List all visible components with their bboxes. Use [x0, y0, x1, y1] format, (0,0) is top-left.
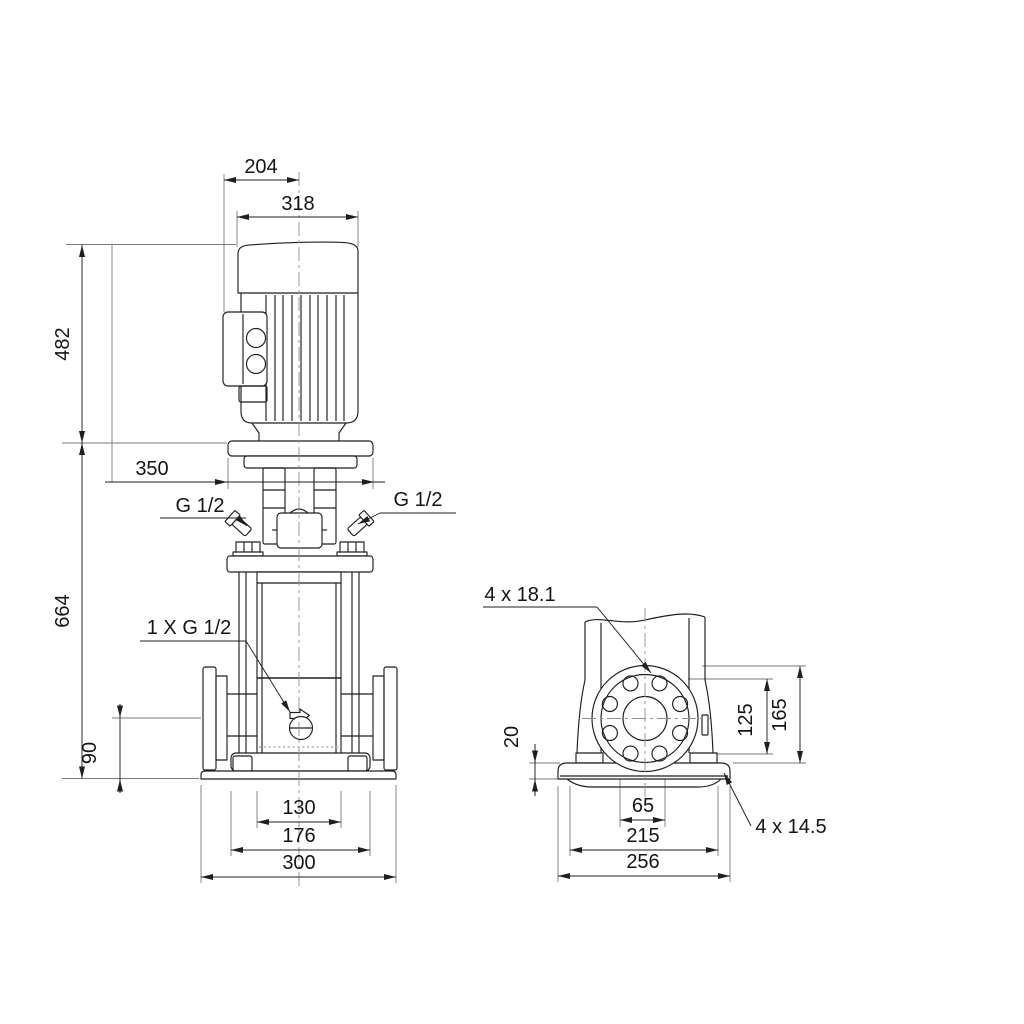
head-nut-left: [233, 542, 263, 556]
dim-300-label: 300: [282, 852, 315, 874]
suction-flange-face: [216, 676, 227, 760]
dim-204-label: 204: [244, 156, 277, 178]
dim-664-label: 664: [52, 594, 74, 627]
dim-176-label: 176: [282, 825, 315, 847]
dim-90-label: 90: [79, 742, 101, 764]
terminal-box: [223, 312, 267, 386]
dim-318-label: 318: [281, 193, 314, 215]
dim-20-label: 20: [501, 726, 523, 748]
dim-215-label: 215: [626, 825, 659, 847]
side-foot-left: [576, 753, 603, 763]
plug-right-label: G 1/2: [394, 489, 443, 511]
priming-plug-left: [225, 510, 254, 538]
rod-nut-left: [233, 756, 252, 771]
side-body-flare-right: [705, 680, 713, 753]
side-plug-tab: [702, 715, 708, 735]
plug-left-label: G 1/2: [176, 495, 225, 517]
dim-256-label: 256: [626, 851, 659, 873]
front-view: [201, 172, 397, 888]
motor-stool-plate: [228, 441, 373, 456]
flange-holes-label: 4 x 18.1: [484, 584, 555, 606]
priming-plug-right: [345, 510, 374, 538]
terminal-box-step: [239, 386, 267, 402]
rod-nut-right: [348, 756, 367, 771]
dim-130-label: 130: [282, 797, 315, 819]
discharge-flange-face: [373, 676, 384, 760]
anchor-holes-label: 4 x 14.5: [755, 816, 826, 838]
drawing-canvas: 204 318 482 664 350 90 130 176 300 G 1/2…: [0, 0, 1024, 1024]
pump-head: [277, 513, 322, 548]
side-body-flare-left: [577, 680, 585, 753]
dim-65-label: 65: [632, 795, 654, 817]
fan-cover: [238, 242, 358, 293]
discharge-flange: [384, 667, 397, 770]
suction-flange: [203, 667, 216, 770]
motor-stool-lower: [244, 456, 357, 468]
leader-anchor-holes: [724, 773, 751, 826]
base-plate-front: [201, 771, 396, 779]
base-skirt: [567, 779, 721, 787]
side-foot-right: [690, 753, 717, 763]
motor-fins: [266, 295, 344, 421]
dim-350-label: 350: [135, 458, 168, 480]
head-nut-right: [337, 542, 367, 556]
drain-plug-label: 1 X G 1/2: [147, 617, 232, 639]
dim-125-label: 125: [735, 703, 757, 736]
head-flange: [227, 556, 373, 572]
pump-dimensional-drawing: 204 318 482 664 350 90 130 176 300 G 1/2…: [0, 0, 1024, 1024]
side-view: [558, 608, 730, 798]
dim-482-label: 482: [52, 327, 74, 360]
dim-165-label: 165: [769, 698, 791, 731]
